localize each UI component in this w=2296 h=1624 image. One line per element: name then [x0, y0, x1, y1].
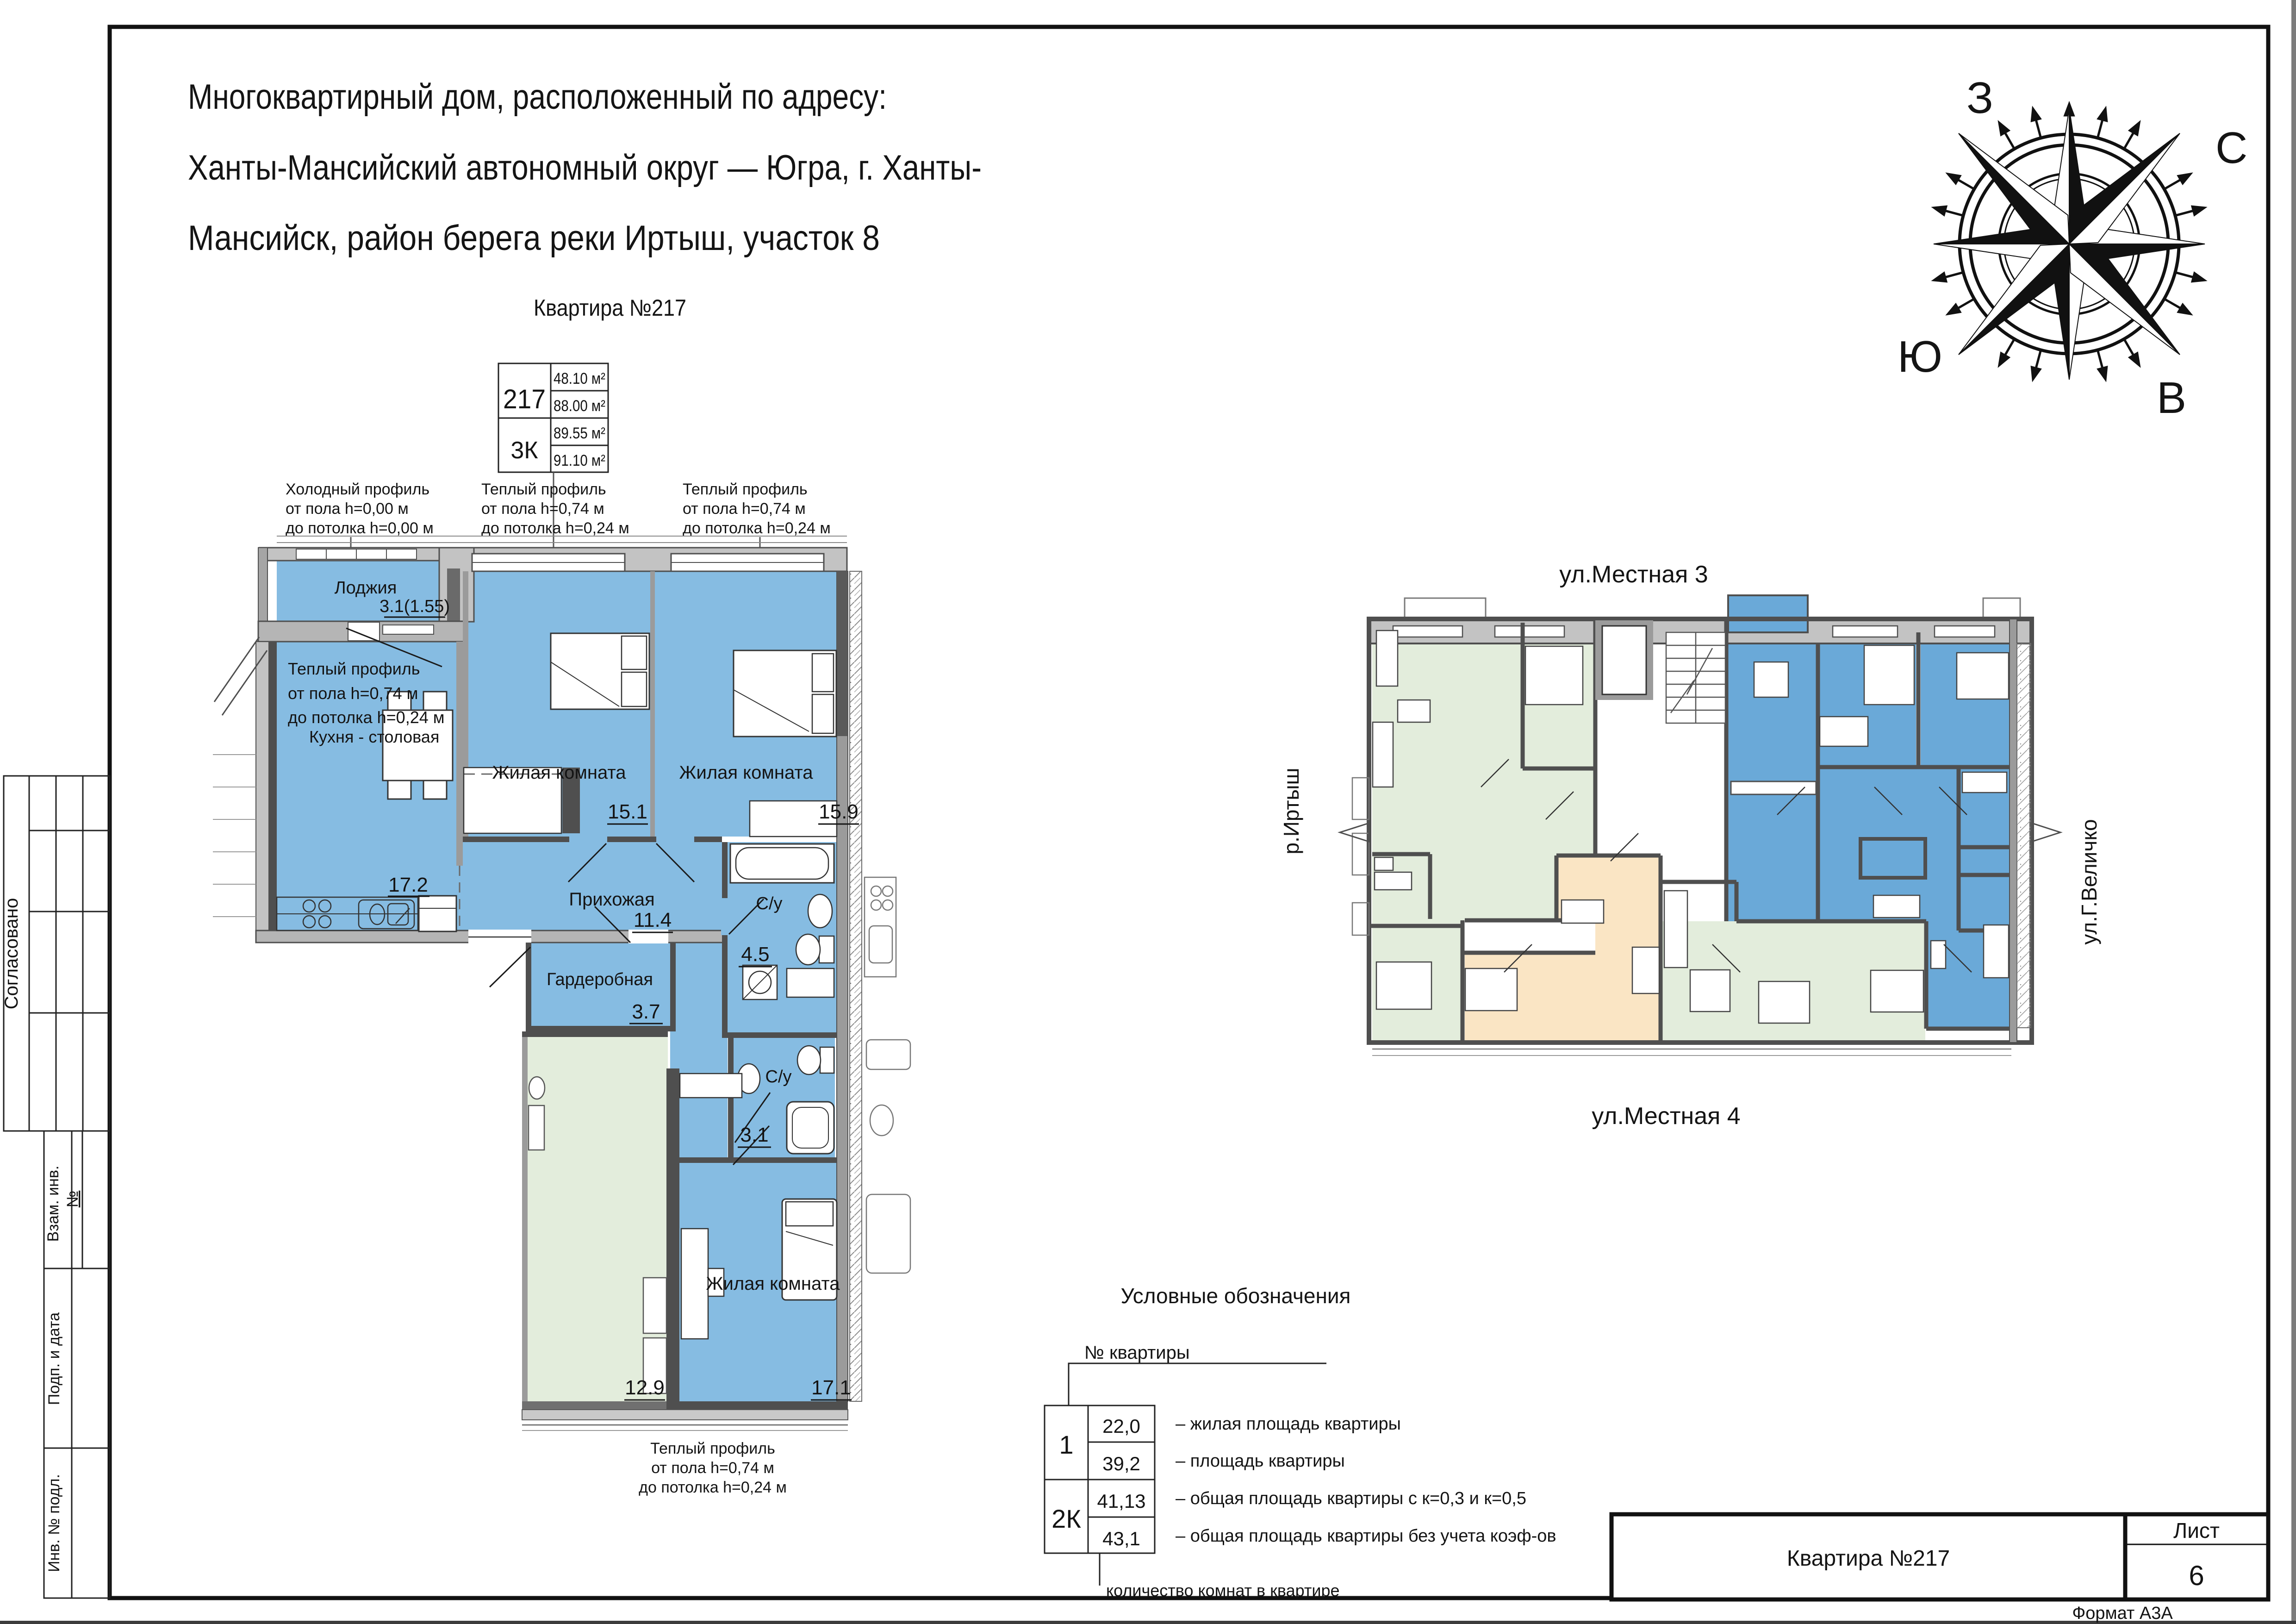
svg-text:17.1: 17.1 — [811, 1376, 851, 1399]
svg-text:2К: 2К — [1052, 1504, 1081, 1533]
svg-text:43,1: 43,1 — [1102, 1528, 1140, 1549]
svg-text:Ханты-Мансийский автономный ок: Ханты-Мансийский автономный округ — Югра… — [188, 148, 982, 187]
svg-text:от пола h=0,74 м: от пола h=0,74 м — [683, 500, 806, 518]
svg-text:Жилая комната: Жилая комната — [679, 762, 814, 783]
svg-text:Гардеробная: Гардеробная — [547, 970, 653, 989]
svg-text:до потолка h=0,24 м: до потолка h=0,24 м — [288, 708, 445, 727]
svg-text:Взам. инв.: Взам. инв. — [44, 1166, 62, 1242]
svg-text:С: С — [2215, 123, 2247, 173]
svg-text:ул.Местная 4: ул.Местная 4 — [1592, 1103, 1740, 1130]
svg-text:Кухня - столовая: Кухня - столовая — [309, 727, 439, 746]
svg-text:3.1: 3.1 — [740, 1124, 768, 1146]
svg-text:Квартира №217: Квартира №217 — [534, 295, 686, 321]
svg-text:от пола h=0,74 м: от пола h=0,74 м — [288, 684, 418, 703]
svg-text:4.5: 4.5 — [741, 943, 769, 966]
svg-text:Холодный профиль: Холодный профиль — [286, 481, 429, 498]
svg-text:Согласовано: Согласовано — [1, 898, 22, 1010]
svg-text:от пола h=0,74 м: от пола h=0,74 м — [481, 500, 604, 518]
svg-text:Жилая комната: Жилая комната — [706, 1274, 840, 1294]
svg-text:Многоквартирный дом, располож: Многоквартирный дом, расположенный по ад… — [188, 77, 887, 117]
svg-text:Формат А3А: Формат А3А — [2072, 1604, 2173, 1623]
svg-text:3.7: 3.7 — [632, 1000, 660, 1023]
svg-text:48.10 м²: 48.10 м² — [554, 370, 605, 387]
svg-text:С/у: С/у — [765, 1067, 792, 1087]
svg-text:Ю: Ю — [1898, 332, 1942, 381]
svg-text:1: 1 — [1059, 1430, 1073, 1459]
svg-text:– общая площадь квартиры без: – общая площадь квартиры без учета коэф-… — [1176, 1526, 1556, 1546]
svg-text:В: В — [2157, 373, 2186, 423]
svg-text:Квартира №217: Квартира №217 — [1787, 1546, 1950, 1571]
svg-text:– жилая площадь квартиры: – жилая площадь квартиры — [1176, 1414, 1401, 1434]
svg-text:12.9: 12.9 — [625, 1376, 665, 1399]
svg-text:до потолка h=0,24 м: до потолка h=0,24 м — [639, 1479, 787, 1496]
svg-text:11.4: 11.4 — [634, 909, 672, 931]
svg-text:3К: 3К — [510, 437, 538, 464]
svg-text:от пола h=0,00 м: от пола h=0,00 м — [286, 500, 409, 518]
svg-text:88.00 м²: 88.00 м² — [554, 397, 605, 415]
svg-text:до потолка h=0,24 м: до потолка h=0,24 м — [683, 519, 831, 537]
svg-text:Теплый профиль: Теплый профиль — [650, 1440, 775, 1457]
svg-text:3.1(1.55): 3.1(1.55) — [380, 597, 450, 616]
svg-text:Подп. и дата: Подп. и дата — [45, 1312, 63, 1405]
svg-text:15.9: 15.9 — [819, 800, 859, 823]
svg-text:ул.Местная 3: ул.Местная 3 — [1559, 561, 1708, 588]
svg-text:15.1: 15.1 — [608, 800, 647, 823]
svg-text:Условные обозначения: Условные обозначения — [1121, 1284, 1351, 1308]
svg-text:Мансийск, район берега реки Ир: Мансийск, район берега реки Иртыш, участ… — [188, 219, 880, 258]
svg-text:89.55 м²: 89.55 м² — [554, 425, 605, 442]
svg-text:№: № — [64, 1191, 81, 1207]
svg-text:З: З — [1966, 73, 1993, 123]
svg-text:– общая площадь квартиры с к=: – общая площадь квартиры с к=0,3 и к=0,5 — [1176, 1489, 1526, 1508]
svg-text:до потолка h=0,24 м: до потолка h=0,24 м — [481, 519, 629, 537]
svg-text:6: 6 — [2189, 1560, 2204, 1591]
svg-text:Инв. № подл.: Инв. № подл. — [45, 1474, 63, 1572]
svg-text:ул.Г.Величко: ул.Г.Величко — [2077, 819, 2101, 944]
svg-text:до потолка h=0,00 м: до потолка h=0,00 м — [286, 519, 434, 537]
svg-text:С/у: С/у — [756, 894, 783, 913]
svg-text:41,13: 41,13 — [1097, 1490, 1145, 1512]
svg-text:22,0: 22,0 — [1102, 1415, 1140, 1437]
svg-text:Теплый профиль: Теплый профиль — [288, 659, 420, 678]
svg-text:Лист: Лист — [2173, 1518, 2220, 1543]
svg-text:р.Иртыш: р.Иртыш — [1279, 768, 1303, 854]
svg-text:39,2: 39,2 — [1102, 1453, 1140, 1474]
svg-text:от пола h=0,74 м: от пола h=0,74 м — [651, 1459, 774, 1477]
svg-text:217: 217 — [503, 384, 546, 414]
svg-text:17.2: 17.2 — [388, 874, 428, 896]
svg-text:Теплый профиль: Теплый профиль — [481, 481, 606, 498]
svg-text:Жилая комната: Жилая комната — [492, 762, 627, 783]
svg-text:№ квартиры: № квартиры — [1084, 1343, 1190, 1363]
svg-text:91.10 м²: 91.10 м² — [554, 452, 605, 469]
svg-text:Теплый профиль: Теплый профиль — [683, 481, 808, 498]
svg-text:Прихожая: Прихожая — [569, 889, 654, 910]
svg-text:количество комнат в квартире: количество комнат в квартире — [1106, 1581, 1340, 1600]
svg-text:– площадь квартиры: – площадь квартиры — [1176, 1451, 1345, 1471]
svg-text:Лоджия: Лоджия — [335, 578, 397, 598]
